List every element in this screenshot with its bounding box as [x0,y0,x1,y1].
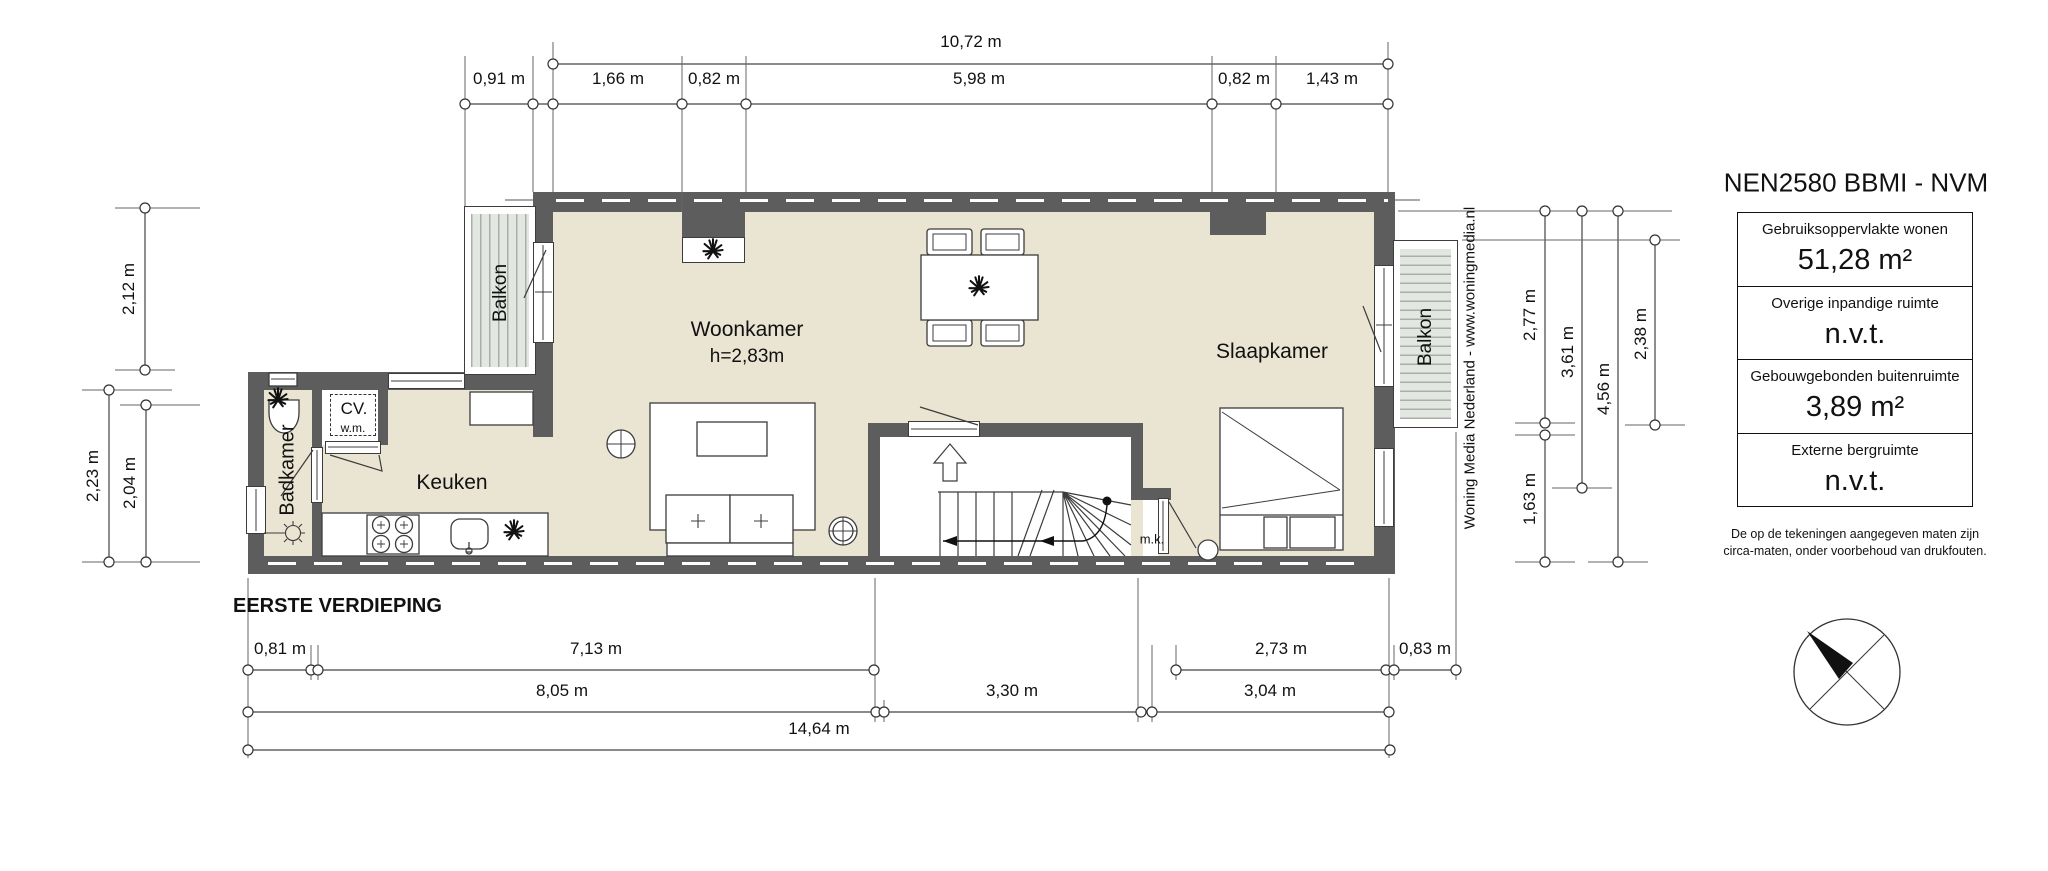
dim-right-1: 3,61 m [1558,326,1578,378]
dim-left-1: 2,23 m [83,450,103,502]
door-leaves [281,250,1381,548]
room-label-wm: w.m. [341,421,366,435]
legend-row-2-label: Gebouwgebonden buitenruimte [1750,368,1959,385]
staircase [934,444,1131,556]
room-label-keuken: Keuken [416,471,487,495]
dim-left-2: 2,04 m [120,457,140,509]
room-height-woonkamer: h=2,83m [710,346,784,368]
dim-lines-right [1398,206,1685,567]
dim-bottom1-2: 2,73 m [1255,639,1307,659]
dim-top-4: 0,82 m [1218,69,1270,89]
dim-top-1: 1,66 m [592,69,644,89]
dim-lines-top [460,42,1393,212]
dim-bottom2-1: 3,30 m [986,681,1038,701]
room-label-mk: m.k. [1140,532,1165,547]
floor-plan: Woonkamer h=2,83m Slaapkamer Keuken Badk… [0,0,2048,871]
legend-row-1: Overige inpandige ruimte n.v.t. [1738,287,1972,361]
side-table [470,392,533,425]
legend-row-0-value: 51,28 m² [1798,244,1912,277]
dim-right-3: 2,38 m [1631,308,1651,360]
compass-rose [1794,619,1900,725]
legend-row-1-value: n.v.t. [1825,318,1886,351]
room-label-balkon-right: Balkon [1415,308,1437,366]
legend-row-2: Gebouwgebonden buitenruimte 3,89 m² [1738,360,1972,434]
dim-left-0: 2,12 m [119,263,139,315]
stairs-up-arrow [934,444,966,481]
dim-bottom2-2: 3,04 m [1244,681,1296,701]
plants [268,239,988,539]
room-label-badkamer: Badkamer [277,424,300,515]
legend-row-3-label: Externe bergruimte [1791,442,1919,459]
legend-row-3: Externe bergruimte n.v.t. [1738,434,1972,507]
dim-right-0: 2,77 m [1520,289,1540,341]
room-label-balkon-left: Balkon [490,264,512,322]
dim-bottom1-1: 7,13 m [570,639,622,659]
plant-niche [703,239,722,258]
bathroom-light [264,521,305,545]
dim-bottom1-3: 0,83 m [1399,639,1451,659]
dim-bottom-total: 14,64 m [788,719,849,739]
dim-top-3: 5,98 m [953,69,1005,89]
dim-top-5: 1,43 m [1306,69,1358,89]
room-label-woonkamer: Woonkamer [691,318,804,342]
bed [1220,408,1343,550]
dim-top-0: 0,91 m [473,69,525,89]
dim-bottom1-0: 0,81 m [254,639,306,659]
furniture [264,229,1343,560]
legend-row-3-value: n.v.t. [1825,465,1886,498]
room-label-cv: CV. [341,399,368,419]
credit-text: Woning Media Nederland - www.woningmedia… [1462,207,1479,529]
dim-top-total: 10,72 m [940,32,1001,52]
stairwell-door-leaf [920,407,978,425]
cv-door-leaf [330,455,382,471]
room-label-slaapkamer: Slaapkamer [1216,340,1328,364]
legend-row-0-label: Gebruiksoppervlakte wonen [1762,221,1948,238]
dim-right-4: 1,63 m [1520,473,1540,525]
legend-disclaimer-line2: circa-maten, onder voorbehoud van drukfo… [1723,544,1986,558]
dim-right-2: 4,56 m [1594,363,1614,415]
dim-bottom2-0: 8,05 m [536,681,588,701]
legend-title: NEN2580 BBMI - NVM [1724,168,1988,199]
dim-top-2: 0,82 m [688,69,740,89]
legend-table: Gebruiksoppervlakte wonen 51,28 m² Overi… [1737,212,1973,507]
dim-lines-left [82,203,200,567]
sofa [650,403,815,556]
plan-title: EERSTE VERDIEPING [233,595,442,618]
legend-row-1-label: Overige inpandige ruimte [1771,295,1939,312]
legend-row-2-value: 3,89 m² [1806,391,1904,424]
balcony-right-door-leaf [1363,306,1381,352]
legend-row-0: Gebruiksoppervlakte wonen 51,28 m² [1738,213,1972,287]
meterkast-door-leaf [1169,502,1196,548]
legend-disclaimer-line1: De op de tekeningen aangegeven maten zij… [1731,527,1979,541]
nightstand [1198,540,1218,560]
